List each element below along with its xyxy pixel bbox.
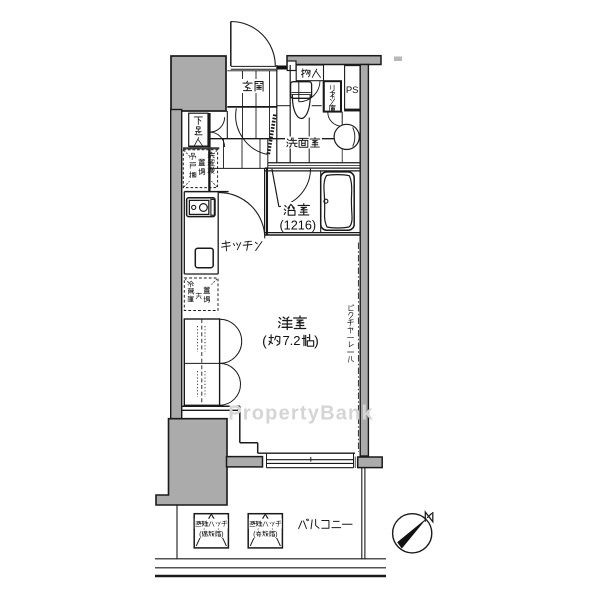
svg-text:): ): [314, 333, 319, 349]
svg-text:): ): [275, 529, 277, 538]
svg-text:): ): [221, 529, 223, 538]
svg-text:7.2: 7.2: [282, 333, 300, 348]
svg-text:(: (: [262, 333, 267, 349]
svg-text:PropertyBank: PropertyBank: [228, 403, 374, 425]
svg-text:(1216): (1216): [279, 218, 316, 232]
svg-text:PS: PS: [346, 85, 359, 96]
